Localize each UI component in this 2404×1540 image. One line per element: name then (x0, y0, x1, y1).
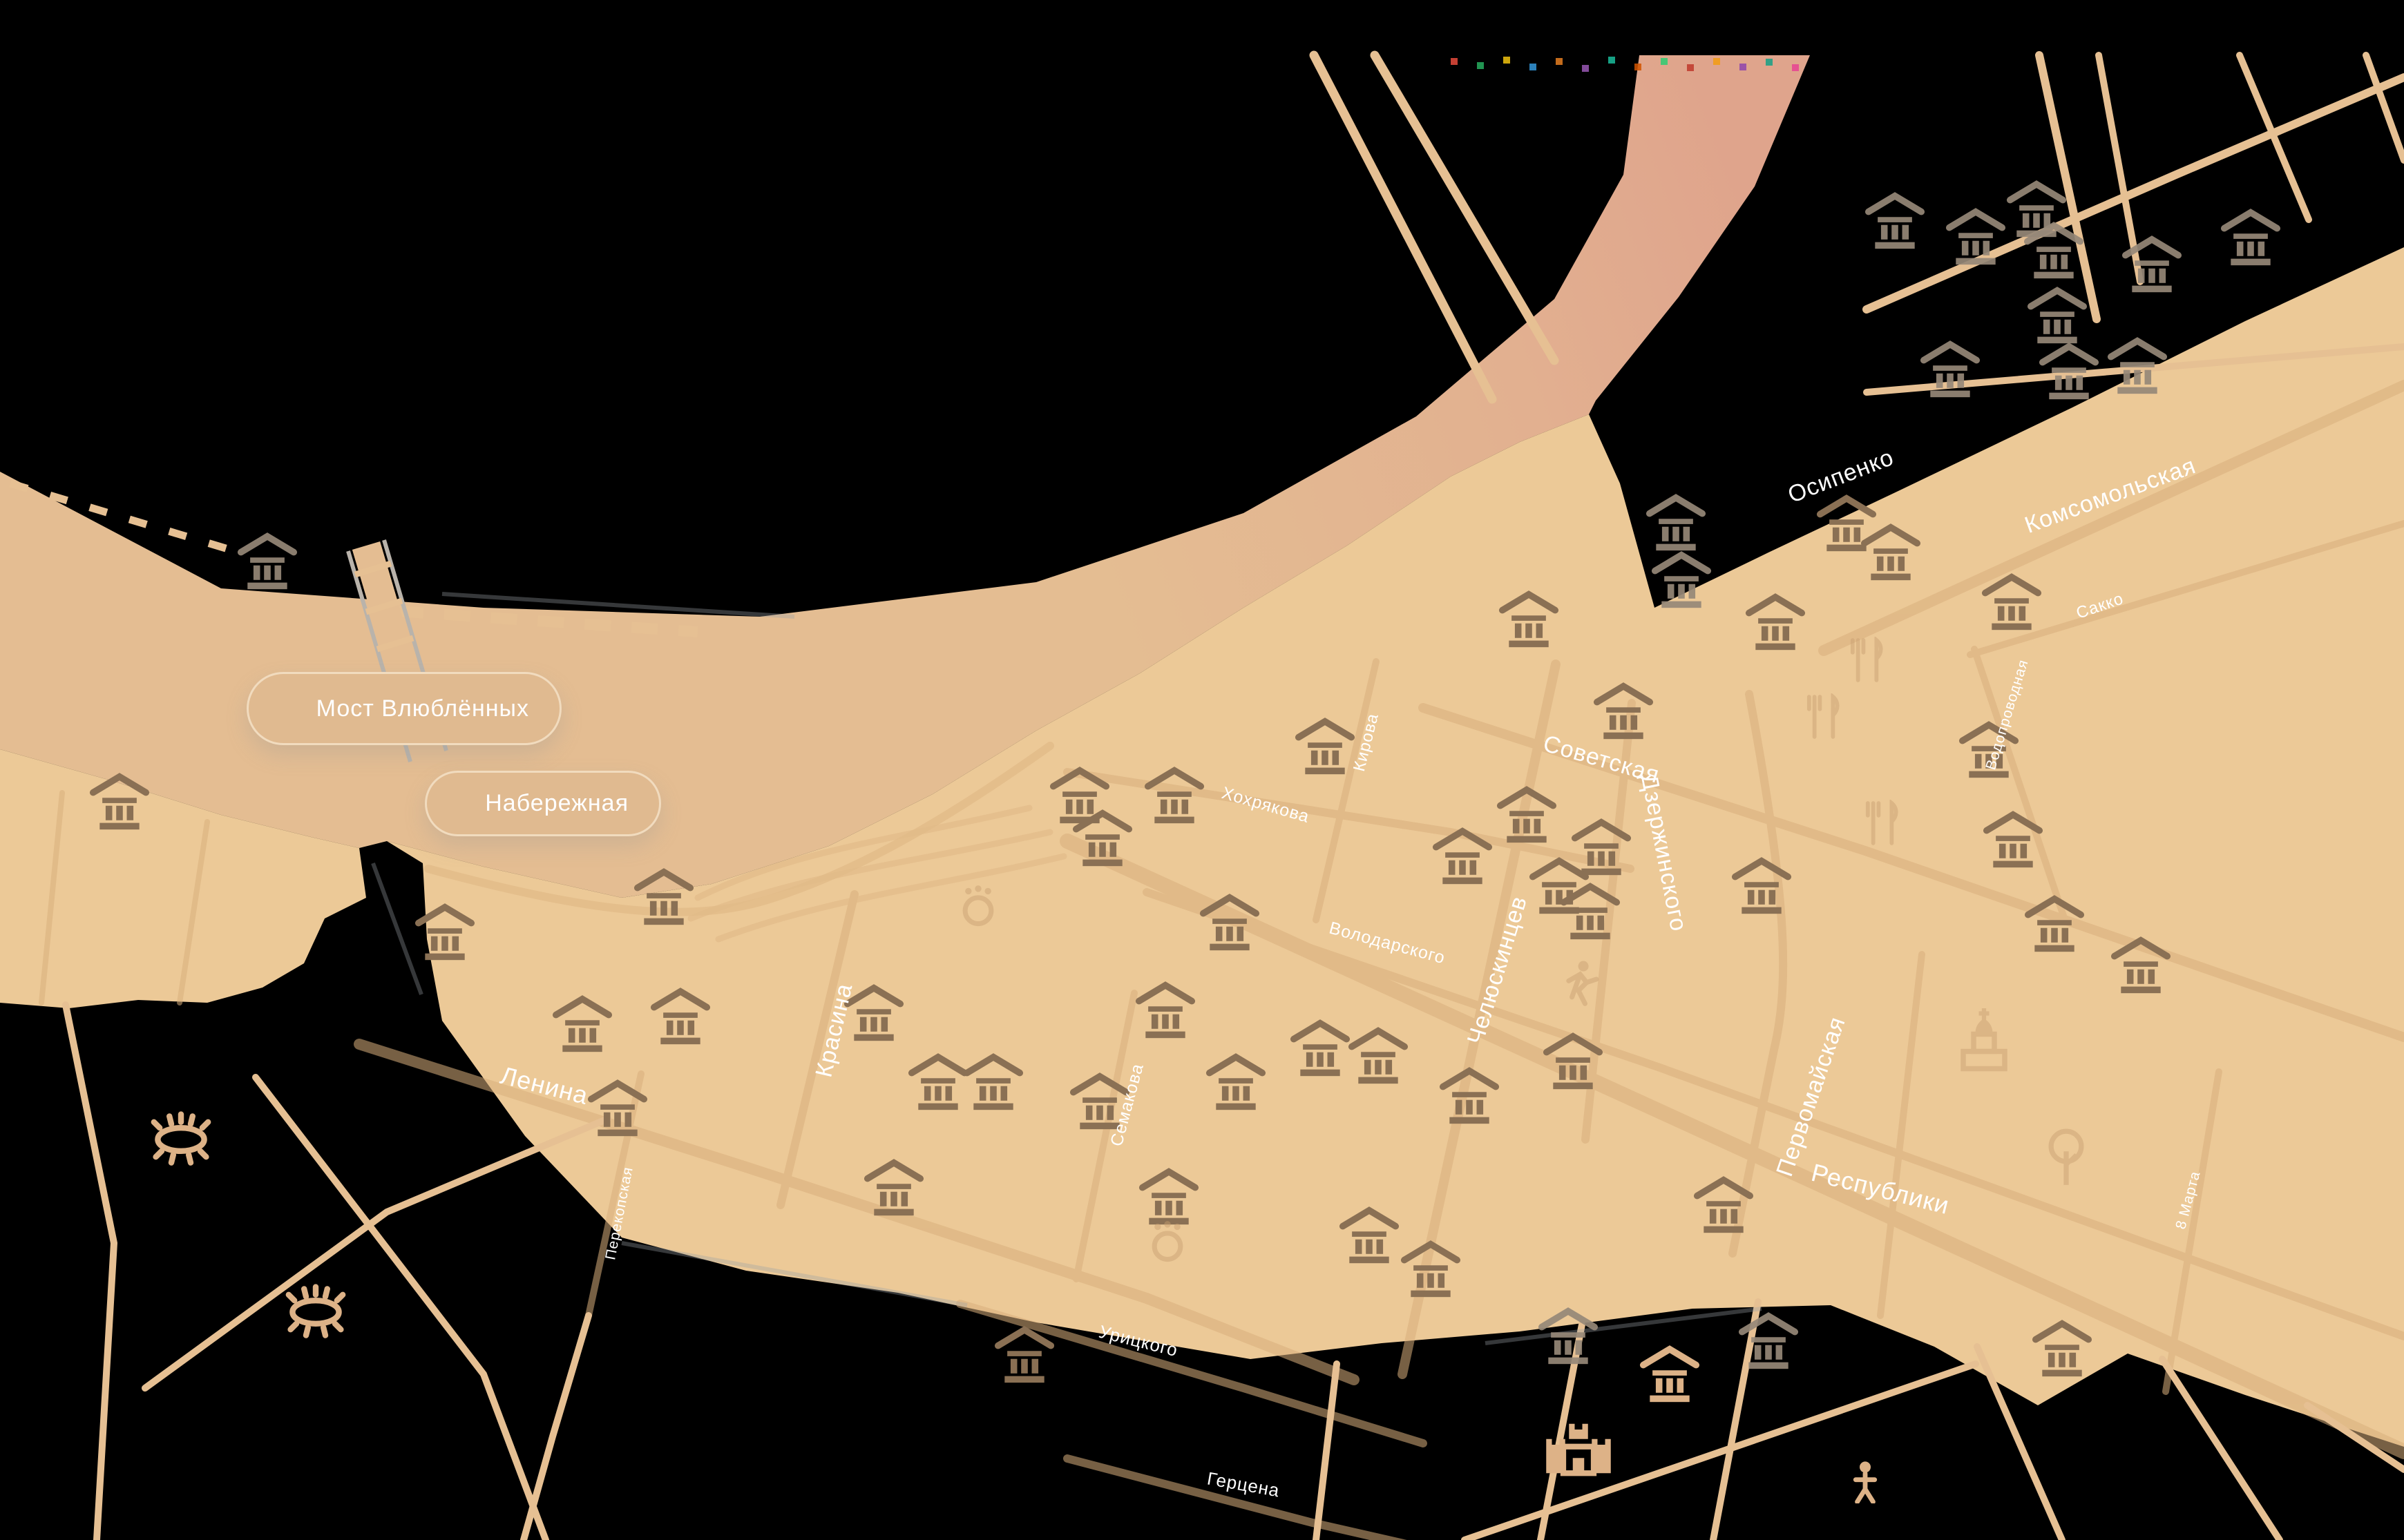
city-map[interactable]: ОсипенкоКомсомольскаяСаккоВодопроводнаяС… (0, 0, 2404, 1540)
person-icon (1856, 1461, 1874, 1501)
embankment-callout-label: Набережная (485, 790, 629, 817)
building-icon (998, 1330, 1051, 1383)
stadium-icon (289, 1287, 343, 1336)
building-icon (241, 537, 294, 590)
embankment-callout-pill[interactable]: Набережная (425, 771, 661, 836)
basemap-art (0, 0, 2404, 1540)
building-icon (1643, 1349, 1697, 1403)
bridge-callout-label: Мост Влюблённых (316, 695, 529, 722)
bridge-callout-pill[interactable]: Мост Влюблённых (247, 672, 562, 745)
castle-icon (1546, 1424, 1611, 1474)
building-icon (1869, 196, 1922, 249)
building-icon (1650, 498, 1703, 551)
building-icon (2224, 213, 2278, 266)
stadium-icon (154, 1115, 208, 1163)
building-icon (2126, 240, 2179, 293)
building-icon (2031, 291, 2084, 344)
